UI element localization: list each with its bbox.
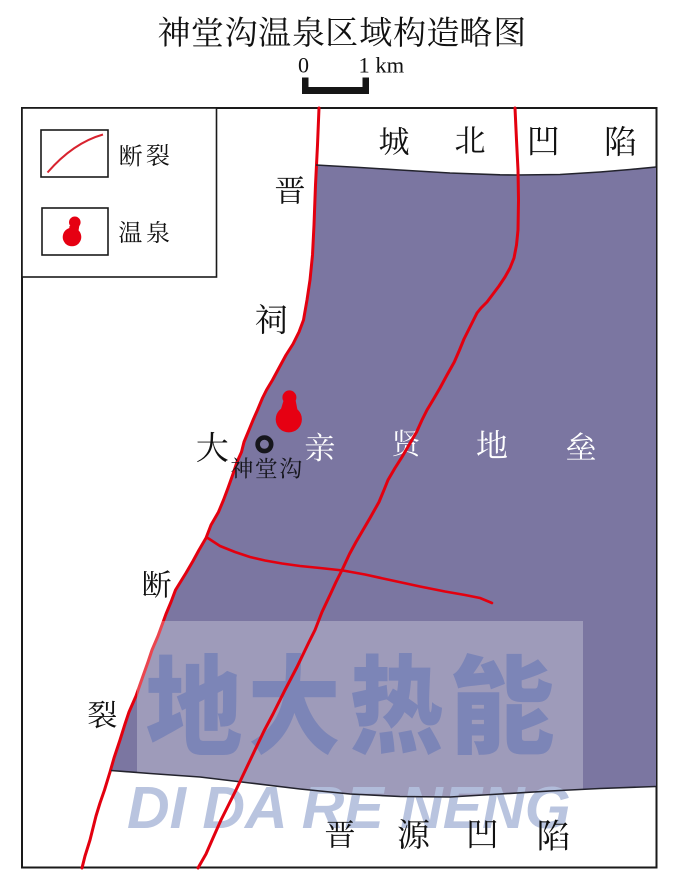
svg-text:DI DA RE NENG: DI DA RE NENG [127, 775, 571, 841]
svg-text:0: 0 [298, 53, 309, 78]
svg-text:1 km: 1 km [359, 53, 405, 78]
